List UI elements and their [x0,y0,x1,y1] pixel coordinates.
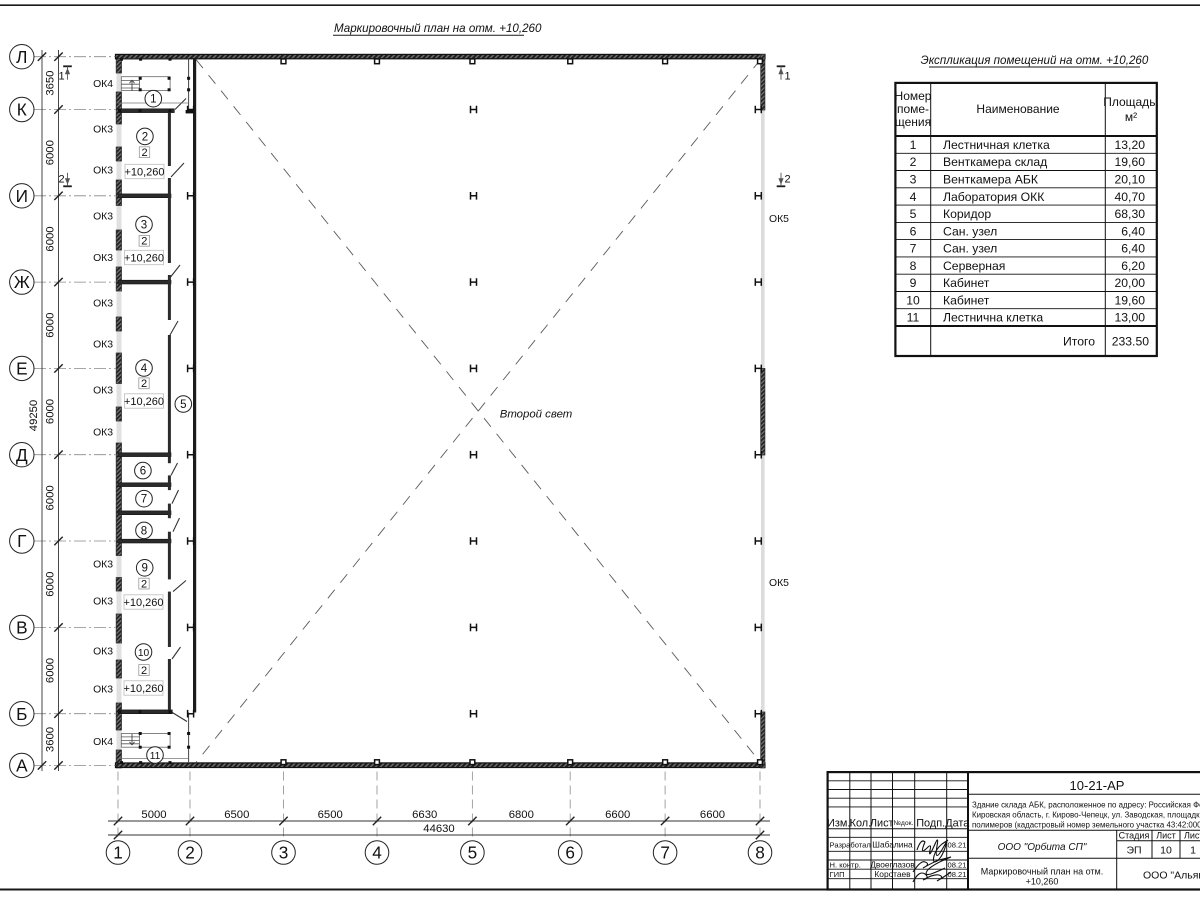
svg-text:6500: 6500 [224,809,249,821]
svg-text:20,00: 20,00 [1115,276,1146,290]
svg-text:2: 2 [141,147,147,159]
svg-text:+10,260: +10,260 [123,597,163,609]
svg-text:2: 2 [142,131,148,143]
svg-text:2: 2 [141,236,147,248]
svg-text:Номер: Номер [895,89,932,103]
svg-text:ОК3: ОК3 [93,386,113,397]
svg-text:К: К [17,100,27,120]
svg-text:40,70: 40,70 [1115,190,1146,204]
svg-text:6000: 6000 [45,658,57,683]
svg-text:2: 2 [58,173,64,185]
svg-text:ОК3: ОК3 [93,340,113,351]
svg-text:10: 10 [1160,845,1172,857]
svg-text:2: 2 [910,155,917,169]
svg-text:И: И [16,186,28,206]
svg-text:Сан. узел: Сан. узел [943,242,997,256]
svg-text:6: 6 [910,224,917,238]
svg-text:Кировская область, г. Кирово-Ч: Кировская область, г. Кирово-Чепецк, ул.… [972,811,1200,820]
svg-text:ОК3: ОК3 [93,647,113,658]
svg-text:6000: 6000 [45,485,57,510]
svg-text:2: 2 [141,665,147,677]
svg-text:7: 7 [141,494,147,506]
svg-text:4: 4 [141,363,148,375]
svg-text:Сан. узел: Сан. узел [943,224,997,238]
svg-text:Лестничная клетка: Лестничная клетка [943,138,1050,152]
svg-text:Кабинет: Кабинет [943,276,990,290]
svg-text:6,20: 6,20 [1121,259,1145,273]
svg-text:6000: 6000 [45,399,57,424]
svg-text:ОК3: ОК3 [93,428,113,439]
svg-text:ОК3: ОК3 [93,560,113,571]
svg-text:6600: 6600 [605,809,630,821]
svg-text:Маркировочный план на отм. +10: Маркировочный план на отм. +10,260 [334,22,542,35]
svg-text:Стадия: Стадия [1119,831,1150,841]
svg-text:4: 4 [372,843,382,863]
svg-text:ОК5: ОК5 [769,578,789,589]
svg-text:ООО "Орбита СП": ООО "Орбита СП" [998,841,1087,853]
svg-text:Г: Г [17,531,26,551]
svg-text:Разработал: Разработал [830,840,871,849]
svg-text:2: 2 [185,843,195,863]
svg-text:ООО "Альянс: ООО "Альянс [1143,870,1200,882]
svg-text:44630: 44630 [423,823,454,835]
svg-text:9: 9 [910,276,917,290]
svg-text:ОК5: ОК5 [769,214,789,225]
svg-text:В: В [16,618,27,638]
svg-text:полимеров (кадастровый номер з: полимеров (кадастровый номер земельного … [972,821,1200,830]
svg-text:Ж: Ж [14,272,30,292]
svg-text:3650: 3650 [45,71,57,96]
svg-text:68,30: 68,30 [1115,207,1146,221]
svg-text:1: 1 [150,94,156,106]
svg-text:1: 1 [58,70,64,82]
svg-text:4: 4 [910,190,917,204]
svg-text:ОК3: ОК3 [93,299,113,310]
svg-text:Экспликация помещений на отм.: Экспликация помещений на отм. +10,260 [921,54,1149,67]
svg-text:Подп.: Подп. [916,818,945,830]
svg-text:20,10: 20,10 [1115,173,1146,187]
svg-text:ЭП: ЭП [1126,845,1141,857]
svg-text:10-21-АР: 10-21-АР [1070,778,1125,793]
svg-text:Коротаев: Коротаев [874,869,911,879]
svg-text:ОК3: ОК3 [93,125,113,136]
svg-text:Второй свет: Второй свет [500,409,573,421]
svg-text:+10,260: +10,260 [124,252,164,264]
svg-text:5: 5 [180,399,186,411]
svg-text:А: А [16,756,28,776]
svg-text:11: 11 [907,311,920,325]
svg-text:2: 2 [141,579,147,591]
svg-text:6000: 6000 [45,313,57,338]
svg-text:Двоеглазов: Двоеглазов [870,860,915,870]
svg-text:3: 3 [279,843,289,863]
svg-text:8: 8 [910,259,917,273]
svg-text:1: 1 [910,138,917,152]
svg-text:8: 8 [755,843,765,863]
svg-text:Е: Е [16,359,27,379]
svg-text:щения: щения [895,115,931,129]
svg-text:19,60: 19,60 [1115,293,1146,307]
svg-text:9: 9 [141,563,147,575]
svg-text:+10,260: +10,260 [123,683,163,695]
svg-text:10: 10 [138,648,150,659]
svg-text:Наименование: Наименование [976,102,1060,116]
svg-text:6000: 6000 [45,572,57,597]
svg-text:1: 1 [784,70,790,82]
svg-text:+10,260: +10,260 [124,396,164,408]
svg-text:Лист: Лист [870,818,894,830]
svg-text:5: 5 [910,207,917,221]
svg-text:Изм.: Изм. [827,818,850,830]
svg-text:6800: 6800 [509,809,534,821]
svg-text:Серверная: Серверная [943,259,1005,273]
svg-text:ГИП: ГИП [830,870,845,879]
svg-text:7: 7 [910,242,917,256]
svg-text:1: 1 [1190,845,1196,857]
svg-text:ОК3: ОК3 [93,166,113,177]
svg-text:6500: 6500 [318,809,343,821]
svg-text:1: 1 [113,843,123,863]
svg-text:Кол.: Кол. [850,818,872,830]
svg-text:6000: 6000 [45,226,57,251]
svg-text:Лестнична клетка: Лестнична клетка [943,311,1043,325]
svg-text:№док.: №док. [894,820,914,827]
svg-text:м²: м² [1125,110,1137,124]
svg-text:+10,260: +10,260 [1026,877,1059,887]
svg-text:Площадь,: Площадь, [1103,95,1159,109]
svg-text:+10,260: +10,260 [124,166,164,178]
svg-text:Б: Б [16,704,27,724]
svg-text:Лист: Лист [1156,831,1176,841]
svg-text:233.50: 233.50 [1112,335,1149,349]
svg-text:Л: Л [16,47,27,67]
svg-text:3600: 3600 [45,727,57,752]
svg-text:11: 11 [150,751,161,762]
svg-text:ОК3: ОК3 [93,597,113,608]
svg-text:ОК3: ОК3 [93,685,113,696]
svg-text:5000: 5000 [141,809,166,821]
svg-text:3: 3 [910,173,917,187]
svg-text:Венткамера склад: Венткамера склад [943,155,1047,169]
svg-text:Маркировочный план на отм.: Маркировочный план на отм. [981,867,1103,877]
svg-text:Дата: Дата [945,818,970,830]
svg-text:6: 6 [565,843,575,863]
svg-text:19,60: 19,60 [1115,155,1146,169]
svg-text:2: 2 [141,378,147,390]
svg-text:Итого: Итого [1063,335,1095,349]
svg-text:Кабинет: Кабинет [943,293,990,307]
svg-text:2: 2 [784,173,790,185]
svg-text:5: 5 [468,843,478,863]
svg-text:6,40: 6,40 [1121,242,1145,256]
svg-text:ОК4: ОК4 [93,737,113,748]
svg-text:Н. контр.: Н. контр. [830,861,861,870]
svg-text:Венткамера АБК: Венткамера АБК [943,173,1039,187]
svg-text:Листов: Листов [1184,831,1200,841]
svg-text:6,40: 6,40 [1121,224,1145,238]
svg-text:08.21: 08.21 [947,840,966,849]
svg-text:08.21: 08.21 [947,861,966,870]
svg-text:08.21: 08.21 [947,870,966,879]
svg-text:Шабалина: Шабалина [872,839,913,849]
svg-text:Лаборатория ОКК: Лаборатория ОКК [943,190,1045,204]
svg-text:49250: 49250 [28,400,40,431]
svg-text:поме-: поме- [897,102,929,116]
svg-text:Здание склада АБК, расположенн: Здание склада АБК, расположенное по адре… [972,801,1200,810]
svg-text:6: 6 [140,466,146,478]
svg-text:Коридор: Коридор [943,207,991,221]
svg-text:6600: 6600 [700,809,725,821]
svg-text:3: 3 [141,219,147,231]
svg-text:10: 10 [906,293,920,307]
svg-text:ОК4: ОК4 [93,79,113,90]
svg-text:6000: 6000 [45,140,57,165]
svg-text:Д: Д [16,445,28,465]
svg-text:6630: 6630 [412,809,437,821]
svg-text:ОК3: ОК3 [93,253,113,264]
svg-text:13,20: 13,20 [1115,138,1146,152]
svg-text:13,00: 13,00 [1115,311,1146,325]
svg-text:ОК3: ОК3 [93,212,113,223]
svg-text:7: 7 [660,843,670,863]
svg-text:8: 8 [141,525,147,537]
